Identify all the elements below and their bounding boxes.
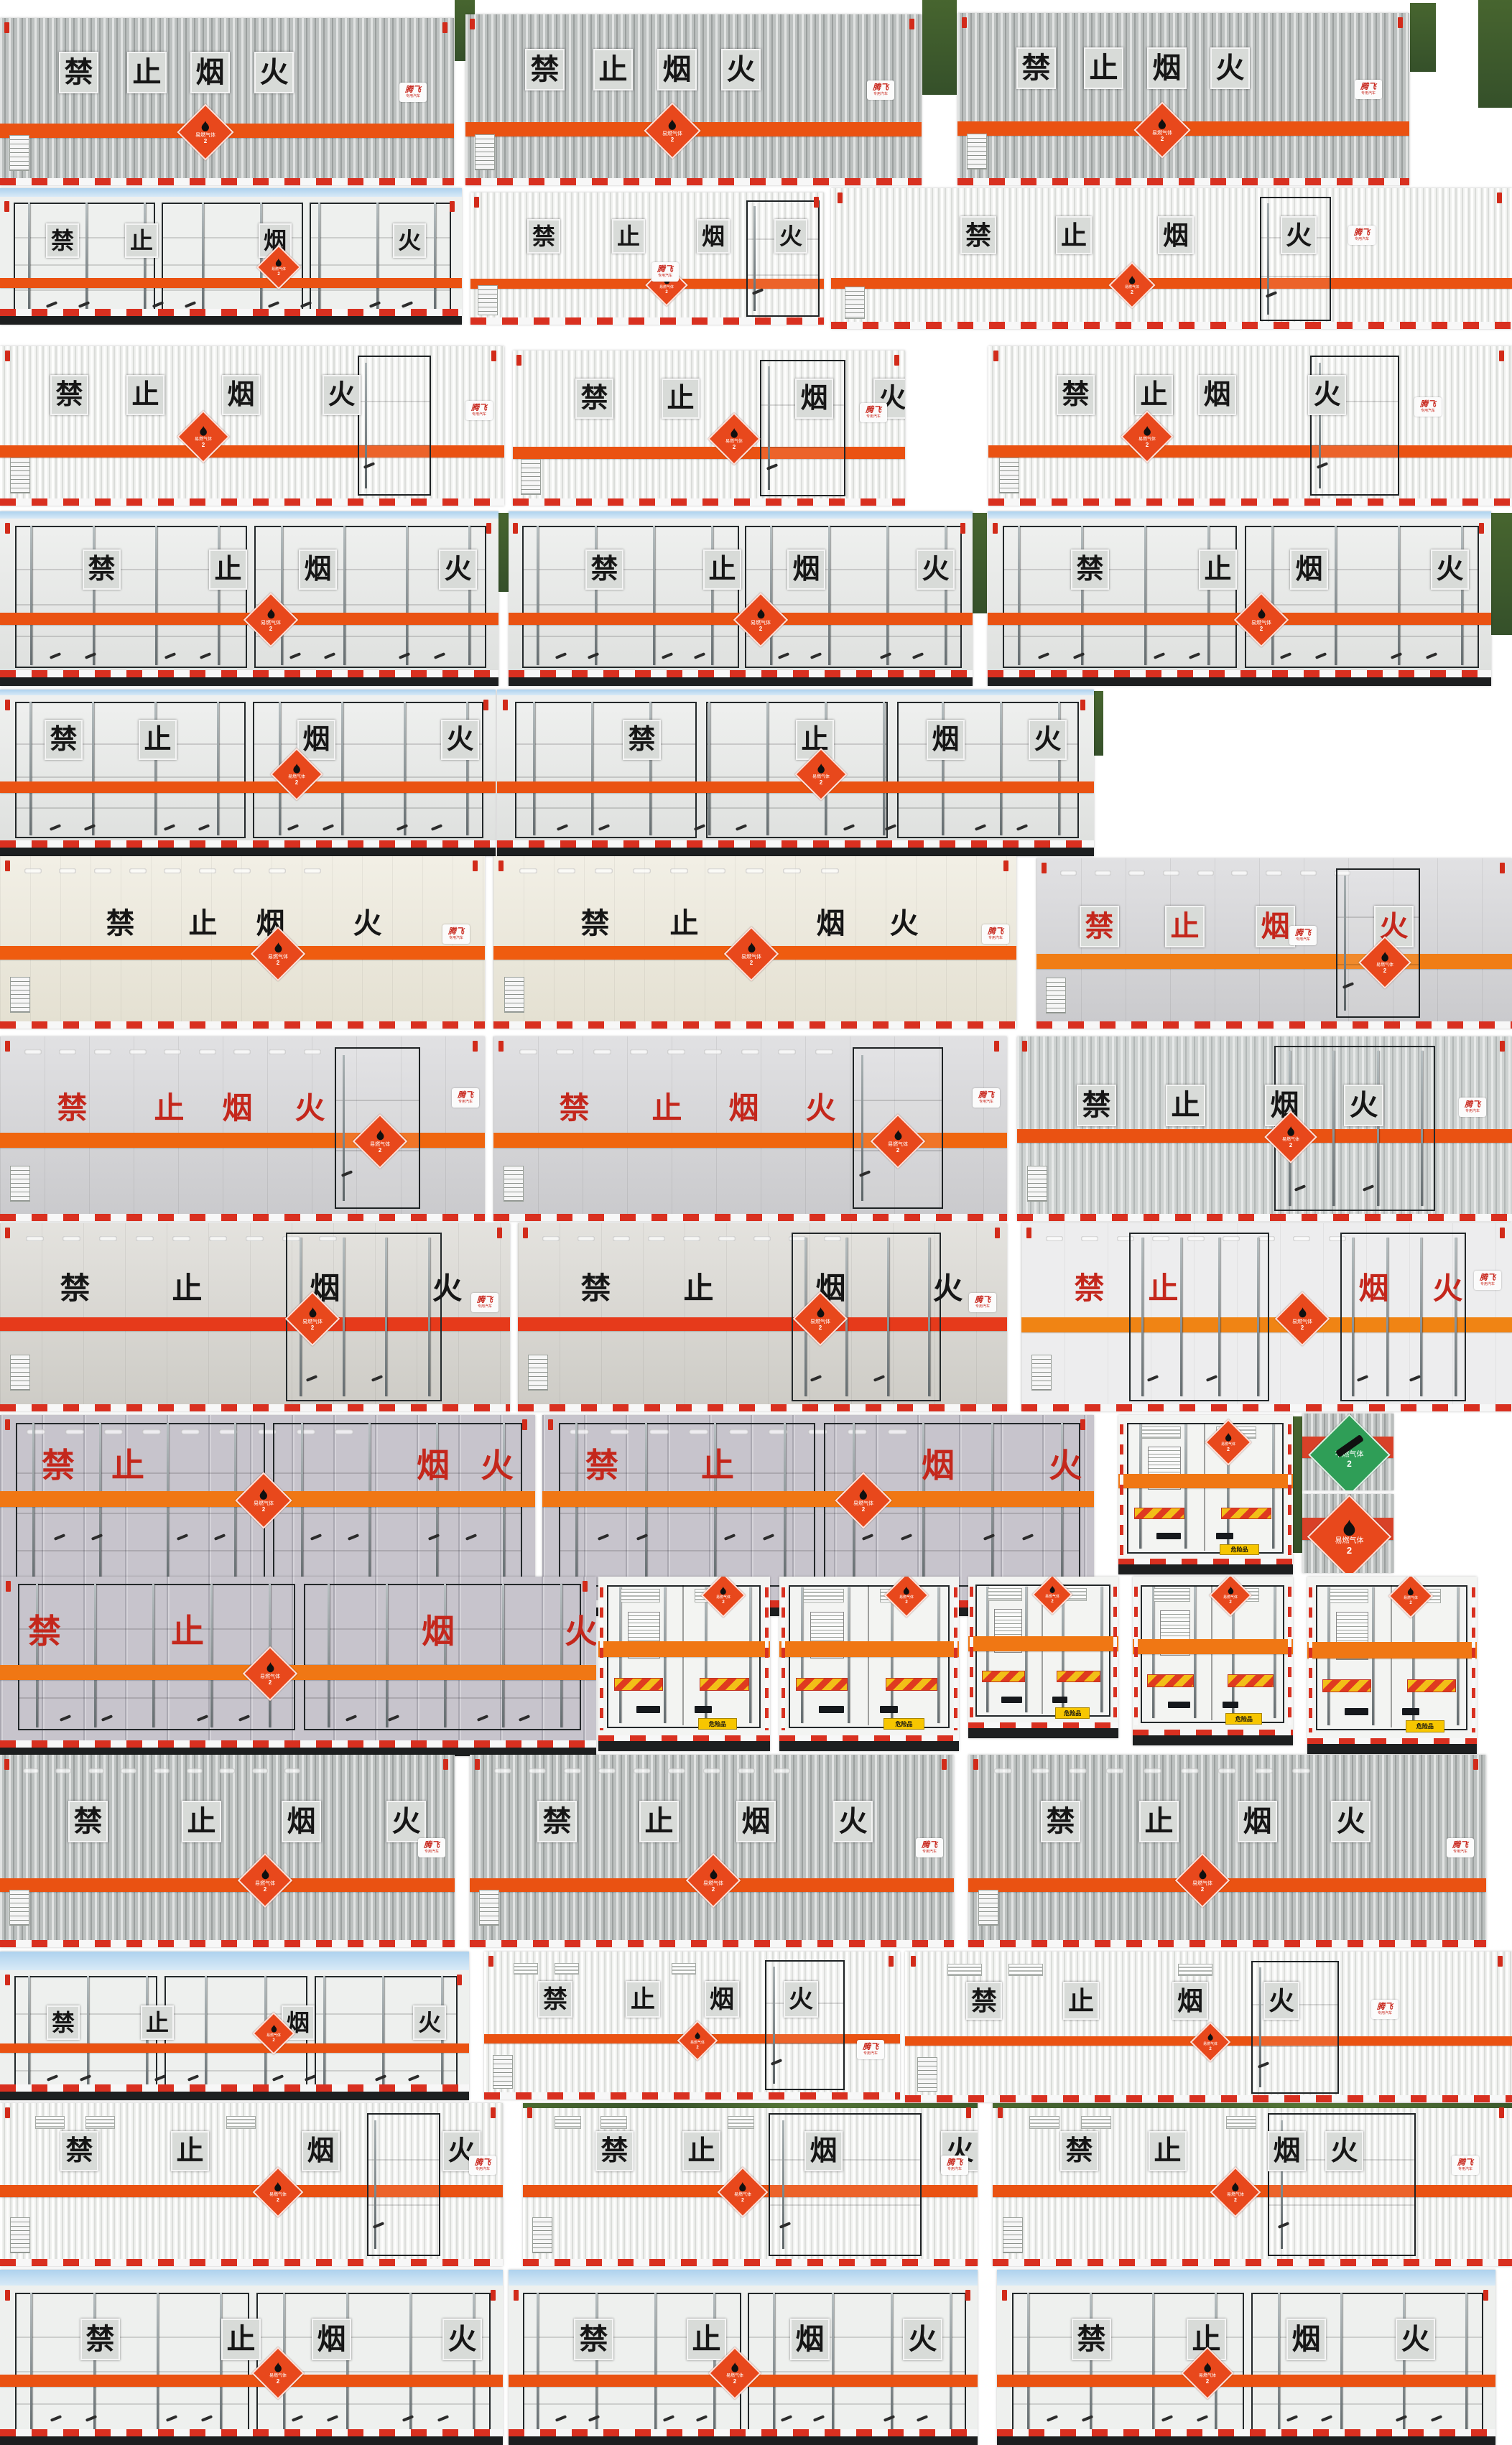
diamond-class-number: 2 bbox=[277, 960, 279, 966]
diamond-class-number: 2 bbox=[264, 1887, 266, 1893]
info-vent-plate bbox=[9, 1890, 29, 1926]
tree-foliage bbox=[498, 513, 509, 592]
door-lock-rod bbox=[773, 1967, 775, 2084]
diamond-class-number: 2 bbox=[896, 1148, 899, 1154]
no-fire-char: 烟 bbox=[1238, 1801, 1277, 1842]
flame-icon bbox=[265, 608, 277, 620]
no-fire-char: 止 bbox=[141, 2005, 174, 2040]
corner-marker bbox=[514, 2290, 519, 2301]
corner-marker bbox=[1003, 860, 1008, 871]
brand-logo-name: 腾飞 bbox=[975, 1296, 991, 1304]
truck-side-photo: 禁止烟火易燃气体2腾飞专用汽车 bbox=[470, 1755, 954, 1947]
door-seam bbox=[560, 1550, 814, 1551]
corner-marker bbox=[5, 1975, 10, 1985]
corner-marker bbox=[995, 1228, 1000, 1238]
corner-marker bbox=[523, 1228, 528, 1238]
corner-marker bbox=[457, 1975, 462, 1985]
no-fire-char: 止 bbox=[127, 52, 167, 93]
door-seam bbox=[560, 1513, 814, 1514]
no-fire-char: 火 bbox=[1263, 1982, 1299, 2020]
reflective-strip bbox=[470, 1940, 954, 1947]
reflective-strip bbox=[0, 1740, 596, 1748]
truck-rear-small-photo: 易燃气体2危险品 bbox=[1307, 1577, 1477, 1754]
sky-background bbox=[0, 511, 498, 519]
no-fire-char: 止 bbox=[593, 49, 633, 91]
vent-slot bbox=[630, 1049, 648, 1054]
diamond-class-number: 2 bbox=[905, 1600, 907, 1605]
diamond-class-number: 2 bbox=[1201, 1887, 1204, 1893]
no-fire-char: 烟 bbox=[812, 904, 849, 943]
lock-rod bbox=[1340, 2293, 1342, 2433]
sky-background bbox=[0, 1952, 469, 1970]
diamond-label: 易燃气体 bbox=[741, 955, 761, 960]
truck-side-photo: 禁止烟火易燃气体2腾飞专用汽车 bbox=[0, 2103, 503, 2266]
truck-side-photo: 禁止烟火易燃气体2腾飞专用汽车 bbox=[518, 1223, 1007, 1411]
door-seam bbox=[770, 2159, 920, 2161]
truck-side-photo: 禁止烟火易燃气体2腾飞专用汽车 bbox=[1036, 858, 1512, 1029]
no-fire-char: 止 bbox=[697, 1443, 738, 1487]
no-fire-char: 烟 bbox=[657, 49, 697, 91]
no-fire-char: 火 bbox=[929, 1268, 967, 1309]
no-fire-char: 火 bbox=[833, 1801, 873, 1842]
diamond-content: 易燃气体2 bbox=[1396, 1582, 1425, 1610]
diamond-label: 易燃气体 bbox=[888, 1142, 908, 1147]
no-fire-char: 止 bbox=[209, 549, 247, 590]
cargo-door bbox=[1251, 1961, 1339, 2094]
reflective-strip bbox=[598, 1735, 770, 1741]
vent-slot bbox=[718, 1236, 736, 1241]
orange-hazard-stripe bbox=[0, 781, 496, 793]
reflective-strip bbox=[0, 1404, 510, 1411]
brand-logo: 腾飞专用汽车 bbox=[465, 401, 493, 420]
lock-rod bbox=[537, 526, 539, 665]
reflective-strip bbox=[513, 498, 905, 506]
diamond-content: 易燃气体2 bbox=[1284, 1301, 1320, 1337]
vent-slot bbox=[994, 1768, 1012, 1773]
door-seam bbox=[766, 2043, 843, 2044]
diamond-label: 易燃气体 bbox=[302, 1319, 323, 1324]
lock-rod bbox=[376, 203, 379, 312]
diamond-class-number: 2 bbox=[722, 1600, 724, 1605]
flame-icon bbox=[1127, 275, 1137, 285]
truck-rear-photo: 禁止烟火易燃气体2 bbox=[0, 690, 496, 856]
lock-rod bbox=[886, 526, 889, 665]
no-fire-char: 止 bbox=[666, 904, 702, 943]
vent-slot bbox=[26, 1236, 44, 1241]
flame-icon bbox=[746, 942, 758, 954]
diamond-content: 易燃气体2 bbox=[802, 1301, 838, 1337]
rear-bumper bbox=[997, 2436, 1495, 2445]
brand-logo-subtitle: 专用汽车 bbox=[1355, 238, 1369, 241]
truck-rear-photo: 禁止烟火易燃气体2 bbox=[497, 690, 1094, 856]
corner-marker bbox=[5, 1228, 10, 1238]
corner-marker bbox=[1398, 17, 1403, 28]
diamond-content: 易燃气体2 bbox=[261, 2176, 294, 2209]
lock-rod bbox=[328, 1584, 330, 1727]
corner-marker bbox=[4, 22, 9, 33]
flame-icon bbox=[1223, 1432, 1233, 1442]
grass-strip bbox=[523, 2103, 978, 2108]
vent-slot bbox=[613, 1236, 630, 1241]
no-fire-char: 禁 bbox=[538, 1981, 572, 2018]
no-fire-char: 禁 bbox=[525, 49, 565, 91]
door-lock-rod bbox=[374, 2120, 376, 2249]
corner-marker bbox=[498, 1041, 504, 1052]
brand-logo-subtitle: 专用汽车 bbox=[449, 937, 463, 940]
reflective-strip bbox=[831, 322, 1512, 329]
no-fire-char: 止 bbox=[182, 1801, 221, 1842]
diamond-label: 易燃气体 bbox=[1404, 1597, 1418, 1600]
diamond-label: 易燃气体 bbox=[734, 2193, 751, 2197]
no-fire-char: 烟 bbox=[1355, 1268, 1393, 1309]
chevron-reflector bbox=[1407, 1679, 1456, 1692]
cargo-door bbox=[1260, 197, 1331, 321]
vent-grille bbox=[85, 2116, 115, 2129]
vent-slot bbox=[1197, 871, 1214, 876]
door-handle bbox=[1278, 2222, 1289, 2229]
no-fire-char: 烟 bbox=[1268, 2131, 1306, 2171]
rear-door-frame bbox=[522, 526, 738, 668]
diamond-class-number: 2 bbox=[1347, 1546, 1352, 1555]
brand-logo-name: 腾飞 bbox=[424, 1842, 440, 1850]
orange-hazard-stripe bbox=[513, 447, 905, 459]
vent-grille bbox=[226, 2116, 256, 2129]
diamond-content: 易燃气体2 bbox=[1321, 1508, 1378, 1565]
no-fire-char: 禁 bbox=[46, 223, 79, 258]
reflective-strip bbox=[484, 2092, 900, 2100]
door-seam bbox=[15, 289, 154, 291]
diamond-content: 易燃气体2 bbox=[892, 1581, 921, 1610]
rear-bumper bbox=[509, 677, 973, 686]
rear-bumper bbox=[497, 848, 1094, 856]
brand-logo: 腾飞专用汽车 bbox=[1452, 2156, 1479, 2175]
no-fire-char: 火 bbox=[428, 1268, 466, 1309]
lock-rod bbox=[1018, 526, 1020, 665]
reflective-strip bbox=[0, 1940, 455, 1947]
diamond-content: 易燃气体2 bbox=[1117, 270, 1147, 300]
no-fire-char: 禁 bbox=[537, 1801, 577, 1842]
chevron-reflector bbox=[1322, 1679, 1371, 1692]
edge-reflective-strip bbox=[1288, 1424, 1291, 1555]
diamond-label: 易燃气体 bbox=[1221, 1443, 1235, 1447]
door-seam bbox=[854, 1100, 942, 1101]
rear-bumper bbox=[1133, 1735, 1293, 1745]
truck-side-photo: 禁止烟火易燃气体2腾飞专用汽车 bbox=[1017, 1036, 1512, 1221]
diamond-label: 易燃气体 bbox=[690, 2041, 705, 2045]
vent-slot bbox=[741, 1049, 759, 1054]
no-fire-char: 止 bbox=[703, 549, 741, 590]
no-fire-char: 止 bbox=[107, 1443, 149, 1487]
lock-rod bbox=[653, 526, 655, 665]
door-seam bbox=[305, 1697, 580, 1699]
corner-marker bbox=[583, 1581, 588, 1592]
door-seam bbox=[256, 604, 485, 606]
door-seam bbox=[1261, 276, 1330, 277]
diamond-content: 易燃气体2 bbox=[1197, 2029, 1223, 2055]
lock-rod bbox=[92, 702, 94, 835]
door-seam bbox=[311, 237, 450, 238]
diamond-class-number: 2 bbox=[1301, 1325, 1304, 1331]
lock-rod bbox=[1421, 1051, 1423, 1207]
diamond-class-number: 2 bbox=[1383, 968, 1386, 974]
vent-slot bbox=[595, 868, 613, 873]
no-fire-char: 禁 bbox=[102, 904, 139, 943]
brand-logo: 腾飞专用汽车 bbox=[1474, 1271, 1501, 1290]
flame-icon bbox=[291, 763, 302, 774]
brand-logo-subtitle: 专用汽车 bbox=[975, 1305, 990, 1309]
diamond-label: 易燃气体 bbox=[899, 1596, 914, 1600]
flame-hazard-diamond: 易燃气体2 bbox=[238, 1853, 292, 1908]
truck-rear-photo: 禁止烟火易燃气体2 bbox=[0, 1577, 596, 1756]
door-seam bbox=[524, 636, 737, 637]
no-fire-char: 止 bbox=[612, 219, 645, 254]
vent-slot bbox=[246, 1236, 264, 1241]
reflective-strip bbox=[1021, 1404, 1512, 1411]
door-lock-rod bbox=[768, 366, 770, 489]
door-handle bbox=[1206, 1375, 1218, 1382]
vent-slot bbox=[164, 868, 181, 873]
door-seam bbox=[1246, 636, 1478, 637]
lock-rod bbox=[832, 2293, 834, 2433]
brand-logo-subtitle: 专用汽车 bbox=[406, 95, 420, 98]
no-fire-char: 烟 bbox=[725, 1088, 763, 1128]
no-fire-char: 禁 bbox=[24, 1609, 65, 1653]
diamond-class-number: 2 bbox=[204, 139, 207, 144]
brand-logo: 腾飞专用汽车 bbox=[860, 403, 887, 422]
vent-slot bbox=[172, 1236, 190, 1241]
corner-marker bbox=[527, 2107, 532, 2118]
lock-rod bbox=[202, 203, 204, 312]
no-fire-char: 禁 bbox=[60, 2131, 98, 2171]
diamond-class-number: 2 bbox=[1260, 626, 1263, 632]
corner-marker bbox=[5, 1419, 10, 1430]
vent-slot bbox=[598, 1768, 616, 1773]
vent-slot bbox=[1060, 871, 1077, 876]
brand-logo-name: 腾飞 bbox=[873, 84, 889, 92]
diamond-class-number: 2 bbox=[277, 2198, 279, 2203]
info-vent-plate bbox=[475, 134, 495, 170]
door-seam bbox=[311, 289, 450, 291]
orange-hazard-stripe bbox=[968, 1636, 1118, 1651]
chevron-reflector bbox=[1134, 1508, 1184, 1519]
vent-slot bbox=[773, 1768, 790, 1773]
door-seam bbox=[17, 807, 244, 809]
no-fire-char: 禁 bbox=[1077, 1085, 1116, 1126]
diamond-content: 易燃气体2 bbox=[1243, 602, 1279, 638]
diamond-class-number: 2 bbox=[1131, 290, 1133, 295]
diamond-label: 易燃气体 bbox=[260, 1674, 280, 1679]
no-fire-char: 禁 bbox=[50, 375, 88, 415]
reflective-strip bbox=[1118, 1559, 1293, 1564]
lock-rod bbox=[30, 526, 32, 665]
sky-background bbox=[497, 690, 1094, 695]
vent-slot bbox=[746, 868, 764, 873]
diamond-content: 易燃气体2 bbox=[718, 2356, 752, 2390]
brand-logo-subtitle: 专用汽车 bbox=[1361, 92, 1376, 96]
no-fire-char: 禁 bbox=[577, 1268, 615, 1309]
reflective-strip bbox=[470, 317, 824, 325]
door-handle bbox=[1363, 1185, 1374, 1192]
door-lock-rod bbox=[1267, 203, 1269, 315]
reflective-strip bbox=[0, 2084, 469, 2092]
diamond-content: 易燃气体2 bbox=[1274, 1120, 1308, 1154]
corner-marker bbox=[503, 700, 508, 710]
tree-foliage bbox=[1491, 513, 1512, 635]
diamond-class-number: 2 bbox=[712, 1887, 715, 1893]
no-fire-char: 止 bbox=[626, 1981, 660, 2018]
brand-logo: 腾飞专用汽车 bbox=[651, 262, 679, 282]
diamond-label: 易燃气体 bbox=[268, 955, 288, 960]
info-vent-plate bbox=[1027, 1166, 1047, 1202]
danger-goods-plate: 危险品 bbox=[698, 1718, 738, 1730]
door-seam bbox=[311, 264, 450, 266]
rear-bumper bbox=[0, 2436, 503, 2445]
diamond-label: 易燃气体 bbox=[1251, 621, 1271, 626]
door-seam bbox=[899, 807, 1077, 809]
brand-logo-name: 腾飞 bbox=[1295, 929, 1311, 937]
brand-logo-name: 腾飞 bbox=[1452, 1842, 1468, 1850]
door-seam bbox=[274, 1550, 521, 1551]
chevron-reflector bbox=[1057, 1671, 1100, 1683]
brand-logo: 腾飞专用汽车 bbox=[982, 924, 1009, 944]
lock-rod bbox=[887, 1238, 889, 1397]
flame-hazard-diamond: 易燃气体2 bbox=[1307, 1495, 1391, 1573]
diamond-content: 易燃气体2 bbox=[260, 936, 296, 972]
lock-rod bbox=[595, 2293, 598, 2433]
corner-marker bbox=[994, 1041, 999, 1052]
license-plate bbox=[1156, 1533, 1181, 1539]
brand-logo: 腾飞专用汽车 bbox=[1348, 226, 1376, 245]
no-fire-char: 禁 bbox=[574, 2319, 613, 2360]
rear-door-frame bbox=[523, 2293, 741, 2436]
rear-bumper bbox=[509, 2436, 978, 2445]
lock-rod bbox=[473, 2293, 475, 2433]
flame-hazard-diamond: 易燃气体2 bbox=[677, 2021, 718, 2061]
vent-slot bbox=[233, 868, 251, 873]
reflective-strip bbox=[465, 178, 922, 185]
sky-background bbox=[509, 511, 973, 519]
reflective-strip bbox=[0, 1021, 485, 1029]
rear-door-frame bbox=[14, 203, 155, 315]
flame-icon bbox=[857, 1488, 870, 1501]
rear-bumper bbox=[1118, 1564, 1293, 1574]
corner-marker bbox=[486, 523, 491, 534]
door-handle bbox=[779, 2222, 790, 2229]
diamond-class-number: 2 bbox=[1234, 2198, 1237, 2203]
no-fire-char: 止 bbox=[139, 720, 177, 760]
no-fire-char: 止 bbox=[171, 2131, 209, 2171]
corner-marker bbox=[483, 700, 488, 710]
rear-door-frame bbox=[14, 1976, 158, 2098]
vent-slot bbox=[704, 1049, 722, 1054]
brand-logo-subtitle: 专用汽车 bbox=[1378, 2012, 1392, 2015]
diamond-class-number: 2 bbox=[1206, 2379, 1209, 2385]
reflective-strip bbox=[1307, 1738, 1477, 1744]
diamond-class-number: 2 bbox=[272, 2038, 274, 2043]
vent-slot bbox=[55, 1768, 71, 1773]
diamond-label: 易燃气体 bbox=[659, 286, 674, 289]
sky-background bbox=[0, 690, 496, 695]
brand-logo-subtitle: 专用汽车 bbox=[1465, 1110, 1480, 1113]
lock-rod bbox=[766, 702, 769, 835]
lock-rod bbox=[386, 1584, 388, 1727]
flame-icon bbox=[1202, 2362, 1213, 2373]
diamond-content: 易燃气体2 bbox=[1039, 1582, 1065, 1607]
door-frame bbox=[1129, 1233, 1269, 1401]
brand-logo: 腾飞专用汽车 bbox=[1447, 1838, 1474, 1857]
no-fire-char: 止 bbox=[687, 2319, 726, 2360]
door-seam bbox=[316, 2070, 457, 2071]
vent-slot bbox=[556, 1049, 574, 1054]
vent-slot bbox=[1106, 1768, 1124, 1773]
corner-marker bbox=[491, 2290, 496, 2301]
corner-marker bbox=[548, 1419, 553, 1430]
door-seam bbox=[516, 743, 695, 745]
flame-icon bbox=[693, 2031, 702, 2040]
diamond-label: 易燃气体 bbox=[703, 1881, 723, 1886]
lock-rod bbox=[1398, 526, 1400, 665]
reflective-strip bbox=[497, 840, 1094, 848]
lock-rod bbox=[883, 702, 885, 835]
vent-slot bbox=[564, 1768, 581, 1773]
license-plate bbox=[695, 1706, 712, 1713]
corner-marker bbox=[474, 197, 479, 208]
door-seam bbox=[17, 1550, 264, 1551]
orange-hazard-stripe bbox=[1133, 1639, 1293, 1654]
brand-logo: 腾飞专用汽车 bbox=[867, 80, 894, 100]
edge-reflective-strip bbox=[781, 1587, 785, 1730]
brand-logo-subtitle: 专用汽车 bbox=[1421, 409, 1435, 413]
corner-marker bbox=[838, 192, 843, 203]
reflective-strip bbox=[997, 2429, 1495, 2436]
diamond-content: 易燃气体2 bbox=[1368, 945, 1402, 980]
diamond-class-number: 2 bbox=[759, 626, 762, 632]
corner-marker bbox=[1498, 1956, 1503, 1967]
no-fire-char: 火 bbox=[291, 1088, 329, 1128]
lock-rod bbox=[218, 526, 220, 665]
brand-logo-name: 腾飞 bbox=[1354, 229, 1370, 237]
door-seam bbox=[368, 2159, 439, 2161]
diamond-class-number: 2 bbox=[269, 1680, 272, 1686]
vent-grille bbox=[1154, 1588, 1190, 1601]
flame-icon bbox=[307, 1307, 319, 1319]
corner-marker bbox=[5, 351, 10, 361]
lock-rod bbox=[28, 203, 30, 312]
door-seam bbox=[17, 636, 246, 637]
no-fire-char: 禁 bbox=[595, 2131, 634, 2171]
no-fire-char: 烟 bbox=[1198, 375, 1236, 415]
no-fire-char: 火 bbox=[254, 52, 294, 93]
tree-foliage bbox=[1094, 691, 1103, 756]
brand-logo-name: 腾飞 bbox=[1465, 1101, 1480, 1109]
no-fire-char: 火 bbox=[349, 904, 386, 943]
brand-logo: 腾飞专用汽车 bbox=[941, 2156, 968, 2175]
vent-grille bbox=[988, 1588, 1022, 1601]
lock-rod bbox=[502, 1584, 504, 1727]
flame-icon bbox=[892, 1129, 904, 1141]
no-fire-char: 禁 bbox=[575, 379, 613, 419]
diamond-class-number: 2 bbox=[696, 2046, 698, 2050]
vent-slot bbox=[1293, 1236, 1310, 1241]
info-vent-plate bbox=[1046, 978, 1066, 1013]
truck-side-photo: 禁止烟火易燃气体2腾飞专用汽车 bbox=[968, 1755, 1486, 1947]
corner-marker bbox=[942, 1759, 947, 1770]
diamond-class-number: 2 bbox=[1347, 1460, 1352, 1468]
brand-logo: 腾飞专用汽车 bbox=[973, 1088, 1000, 1108]
truck-side-photo: 禁止烟火易燃气体2腾飞专用汽车 bbox=[465, 14, 922, 185]
no-fire-char: 禁 bbox=[68, 1801, 108, 1842]
flame-hazard-diamond: 易燃气体2 bbox=[718, 2167, 769, 2218]
